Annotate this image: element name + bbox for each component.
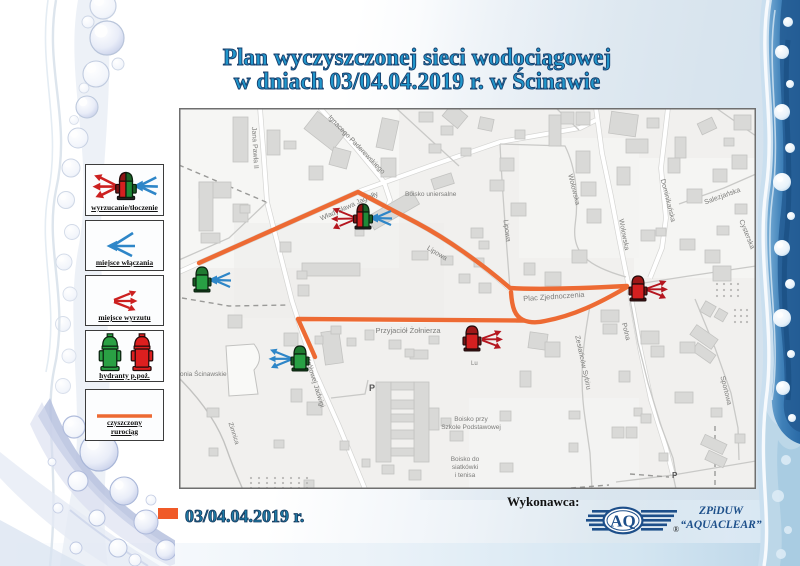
svg-text:P: P (369, 383, 375, 393)
svg-text:Boisko do: Boisko do (451, 456, 480, 463)
svg-text:Szkole Podstawowej: Szkole Podstawowej (441, 424, 501, 431)
svg-text:AQ: AQ (610, 512, 636, 531)
svg-text:Lipowa: Lipowa (501, 219, 511, 242)
svg-text:Boisko przy: Boisko przy (454, 416, 488, 423)
svg-text:Plac Zjednoczenia: Plac Zjednoczenia (523, 290, 586, 303)
svg-text:Przyjaciół Żołnierza: Przyjaciół Żołnierza (375, 326, 441, 335)
svg-text:Lu: Lu (471, 361, 478, 367)
svg-text:Polna: Polna (620, 322, 631, 341)
svg-text:siatkówki: siatkówki (452, 464, 478, 471)
svg-text:onia Ścinawskie: onia Ścinawskie (180, 369, 227, 378)
svg-text:i tenisa: i tenisa (455, 472, 476, 479)
svg-text:Zimnica: Zimnica (227, 422, 241, 446)
svg-text:Boisko uniersalne: Boisko uniersalne (405, 191, 457, 198)
svg-text:P: P (672, 471, 678, 480)
